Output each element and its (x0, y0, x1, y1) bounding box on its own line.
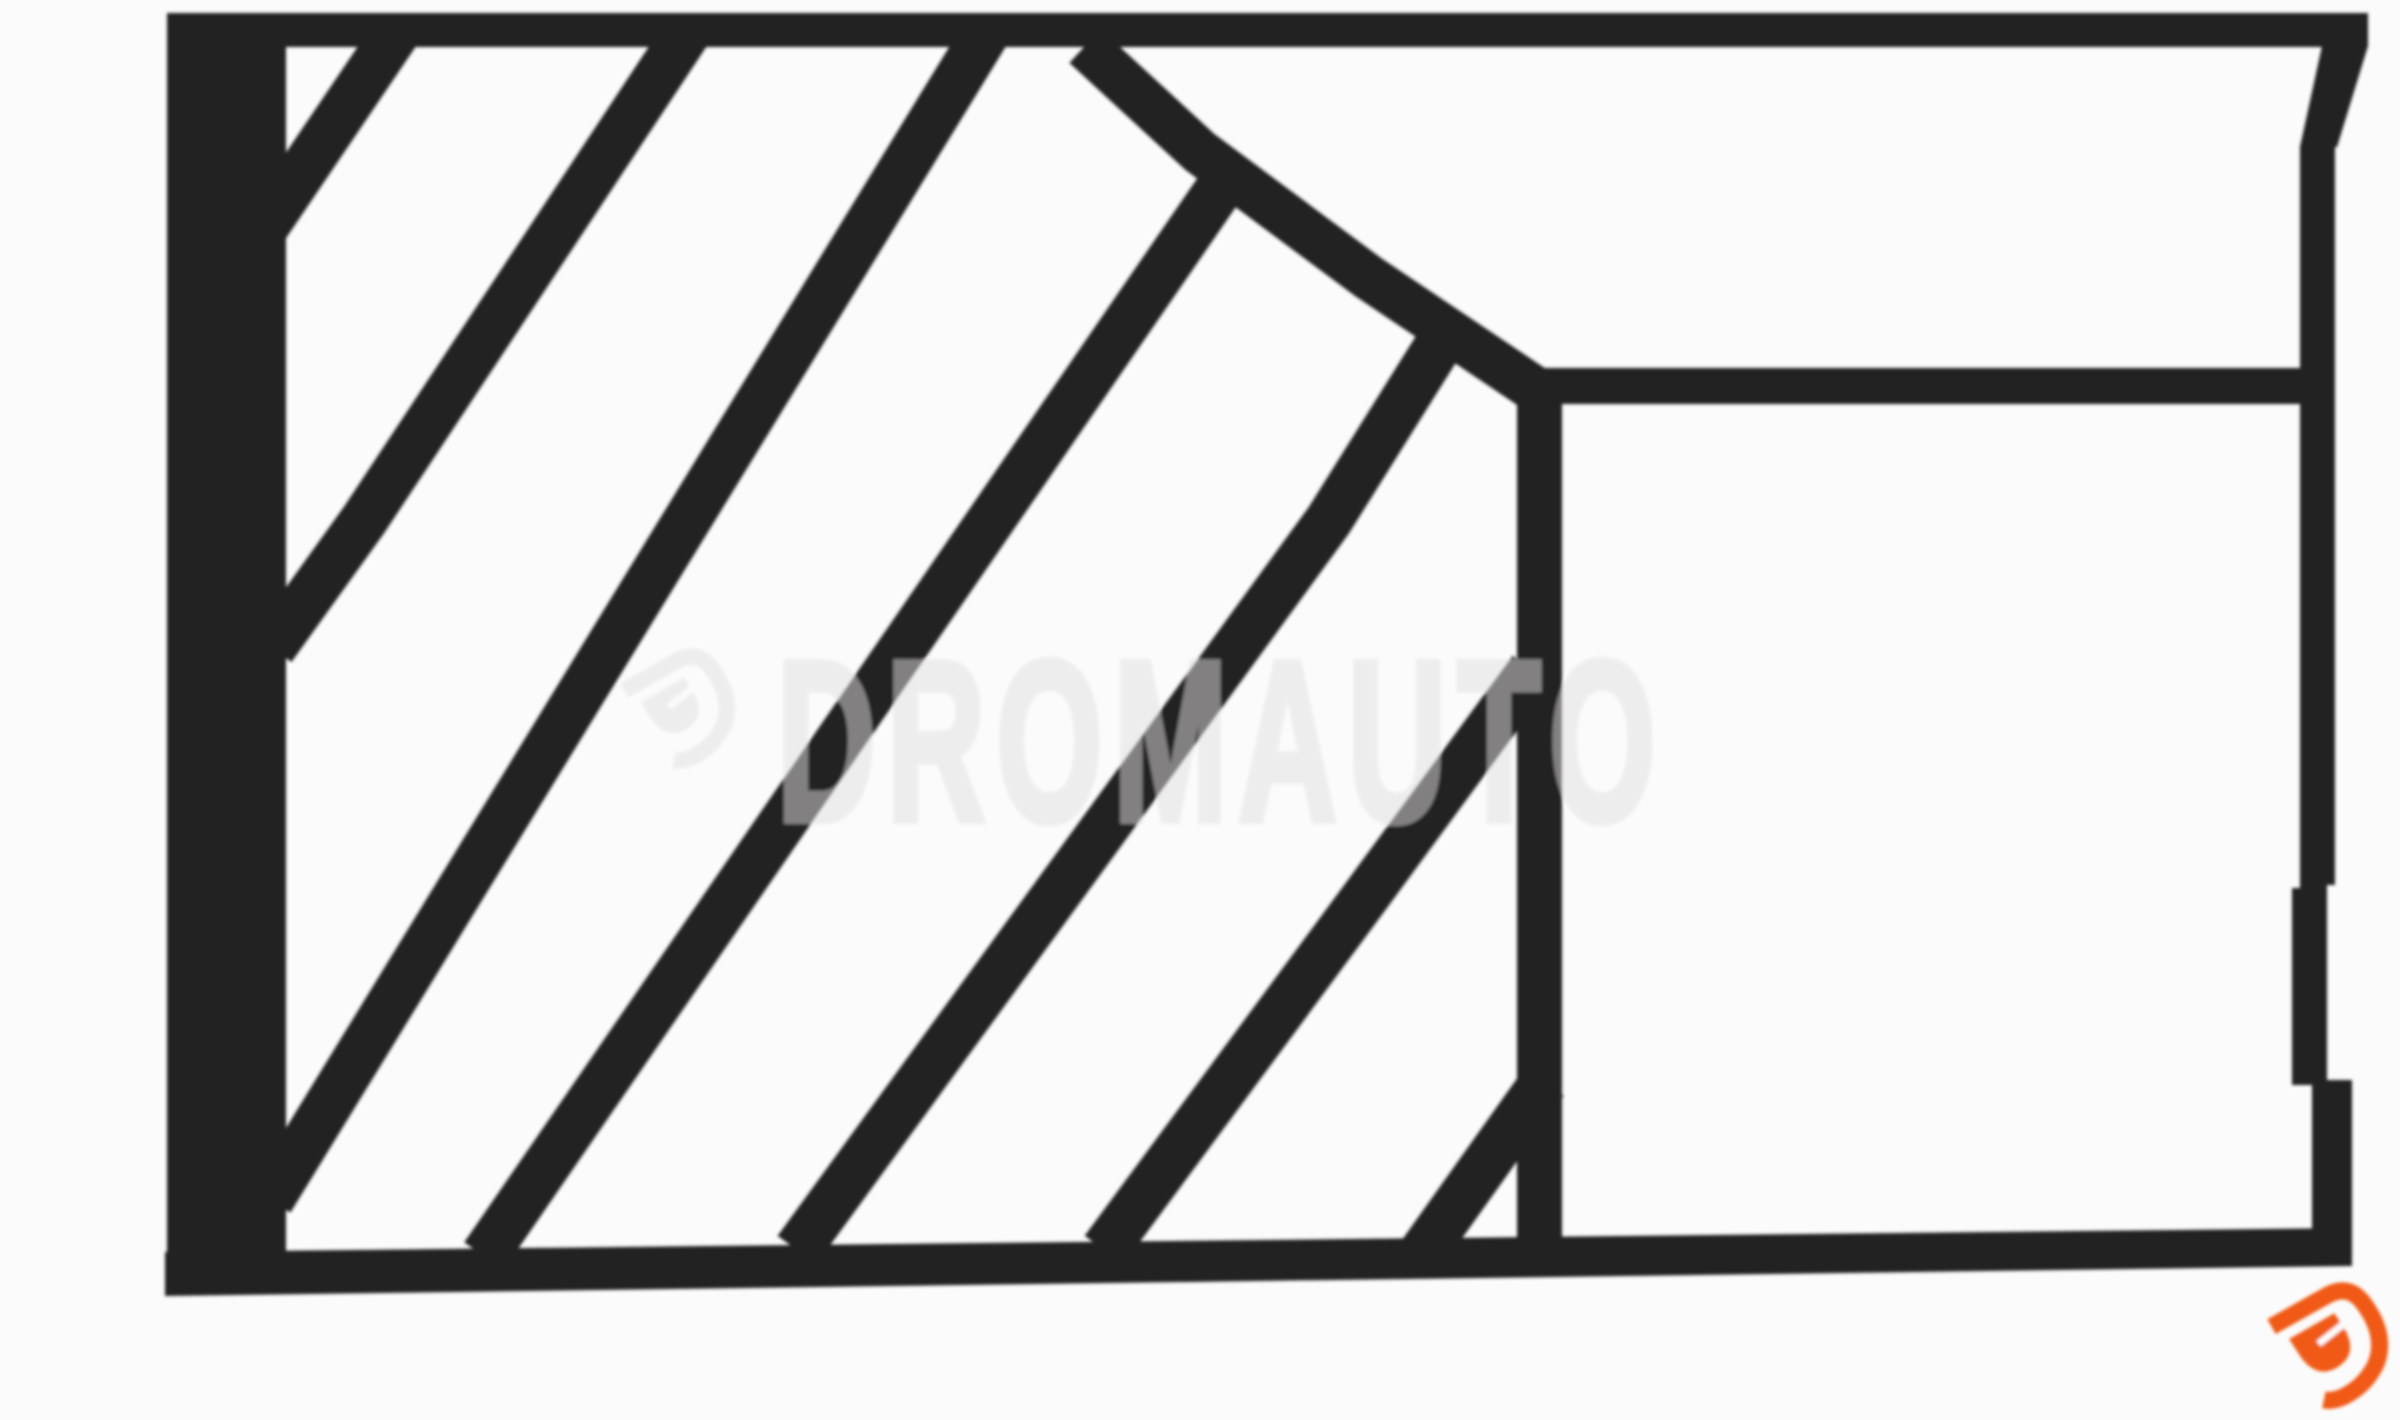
svg-text:DROMAUTO: DROMAUTO (777, 614, 1666, 869)
